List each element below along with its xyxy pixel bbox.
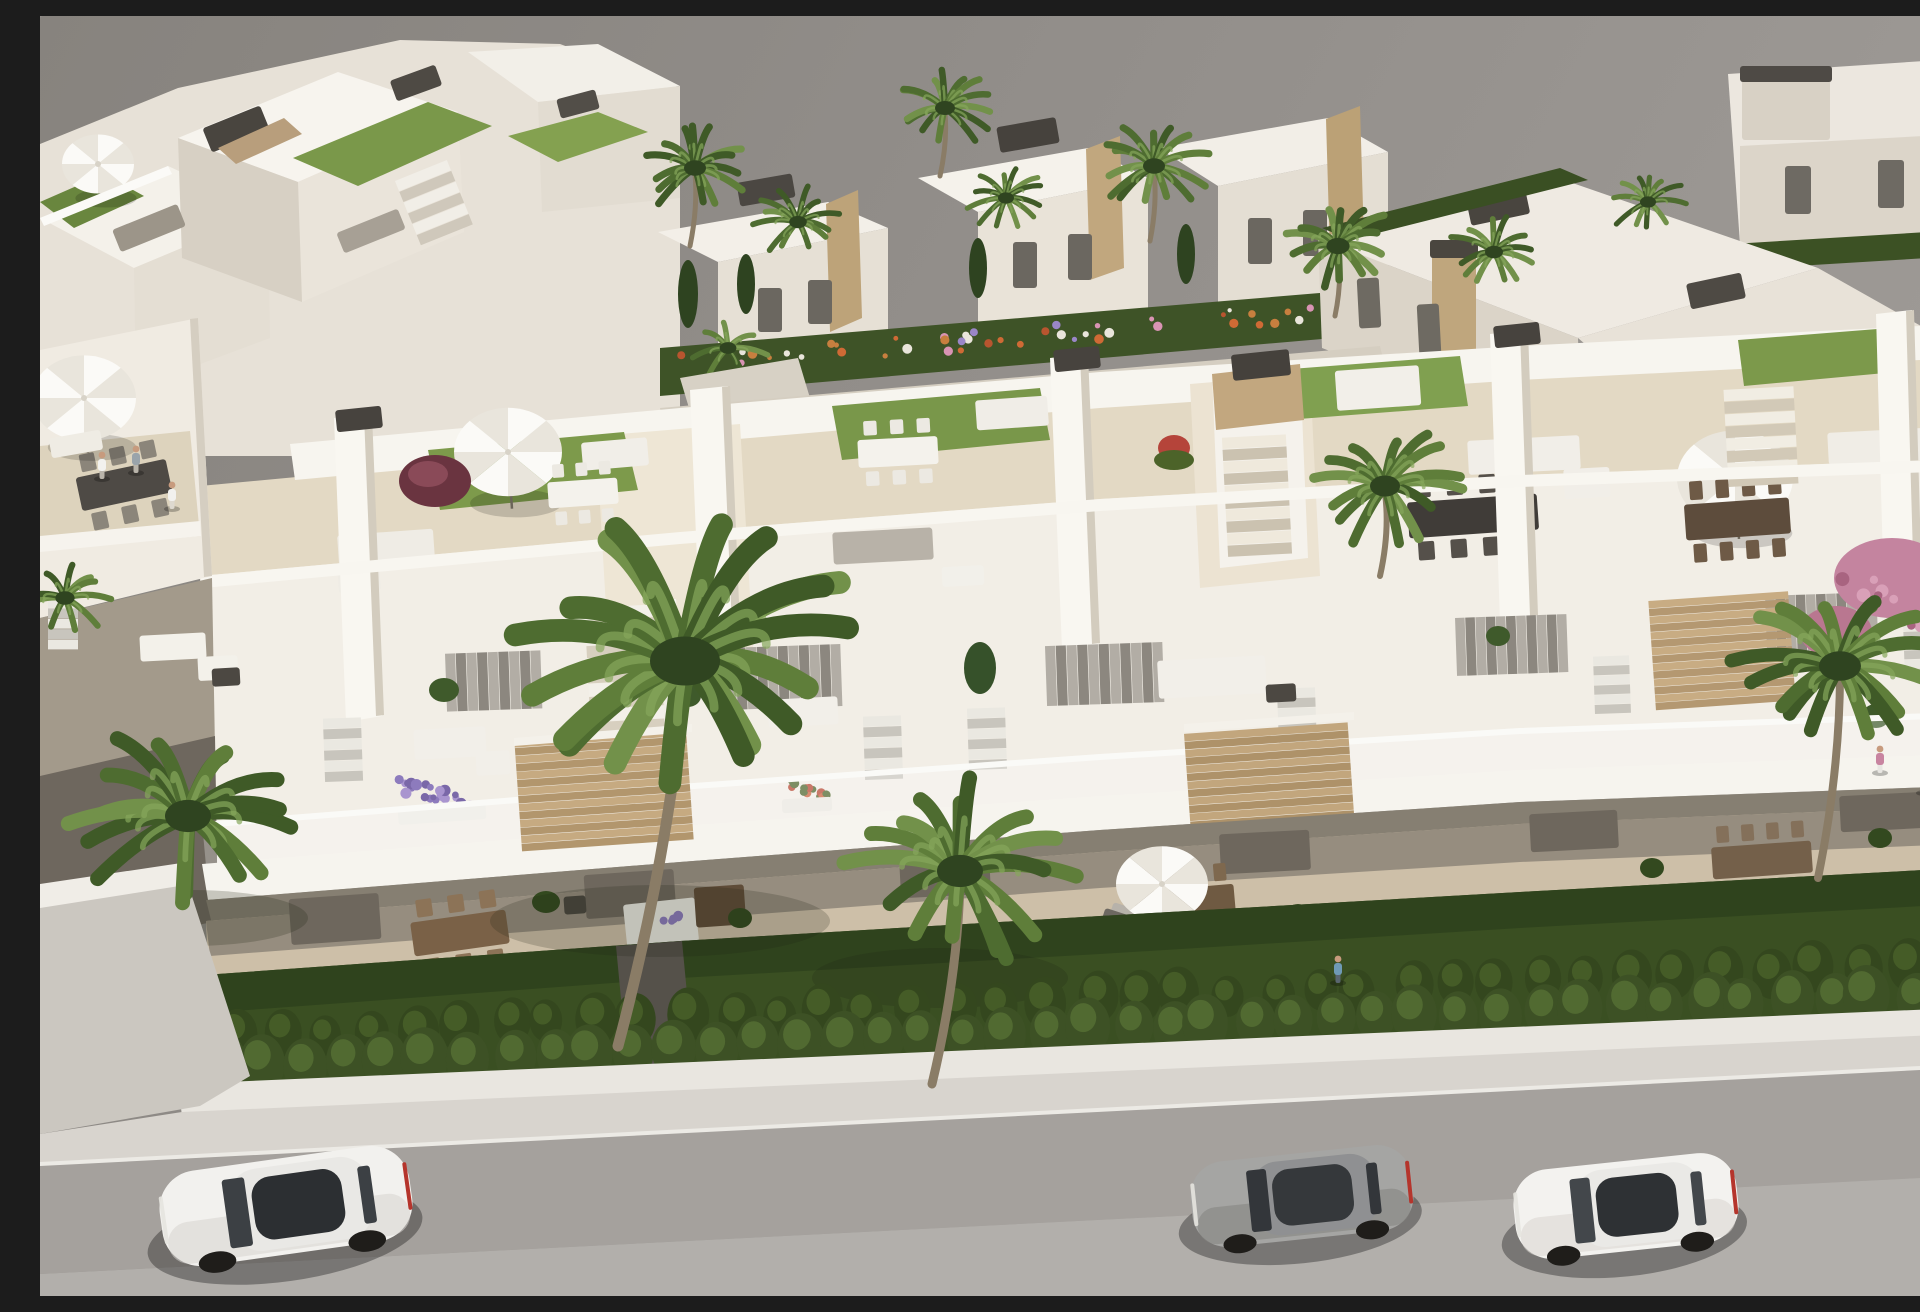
deck-lounger-1: [581, 437, 649, 471]
villa-1-window-1: [758, 288, 782, 332]
curtain-screen-3: [1045, 642, 1164, 706]
garden-cypress-1: [678, 260, 698, 328]
balcony-coffee-table-4: [1266, 683, 1297, 703]
topright-chimney-cap: [1740, 66, 1832, 82]
right-window-2: [1417, 303, 1442, 354]
garden-cypress-4: [1177, 224, 1195, 284]
red-leaf-shrub-hi: [408, 461, 448, 487]
balcony-plant-3: [964, 642, 996, 694]
deck-daybed-3: [1335, 365, 1422, 411]
garden-cypress-2: [737, 254, 755, 314]
deck-dining-white-2: [856, 417, 939, 486]
topright-window-2: [1878, 160, 1904, 208]
balcony-sofa-2b: [475, 750, 510, 776]
ground-door-recess-4: [1219, 830, 1311, 875]
ground-pot-6: [1868, 828, 1892, 848]
render-canvas: [40, 16, 1920, 1296]
topright-window-1: [1785, 166, 1811, 214]
balcony-sofa-1a: [139, 632, 206, 661]
curtain-screen-4: [1455, 614, 1568, 676]
deck-sofa-gray-2: [832, 527, 934, 564]
topright-chimney: [1742, 74, 1830, 140]
villa-3-window-1: [1248, 218, 1272, 264]
villa-2-window-1: [1013, 242, 1037, 288]
balcony-plant-4: [1486, 626, 1510, 646]
garden-cypress-3: [969, 238, 987, 298]
ground-pot-5: [1640, 858, 1664, 878]
deck-dining-white-1: [546, 460, 620, 526]
right-window-1: [1357, 277, 1382, 328]
villa-2-window-2: [1068, 234, 1092, 280]
palm-shadow-big: [490, 885, 830, 957]
ground-door-recess-5: [1529, 810, 1619, 853]
deck-lounger-2: [975, 396, 1049, 431]
villa-1-window-2: [808, 280, 832, 324]
deck-coffee-table-2: [942, 565, 985, 587]
balcony-coffee-table-1: [212, 667, 241, 686]
architectural-render: [40, 16, 1920, 1296]
balcony-sofa-4: [1157, 655, 1267, 699]
deck-flowerpot-green: [1154, 450, 1194, 470]
ground-door-recess-6: [1839, 792, 1920, 832]
balcony-plant-1: [429, 678, 459, 702]
